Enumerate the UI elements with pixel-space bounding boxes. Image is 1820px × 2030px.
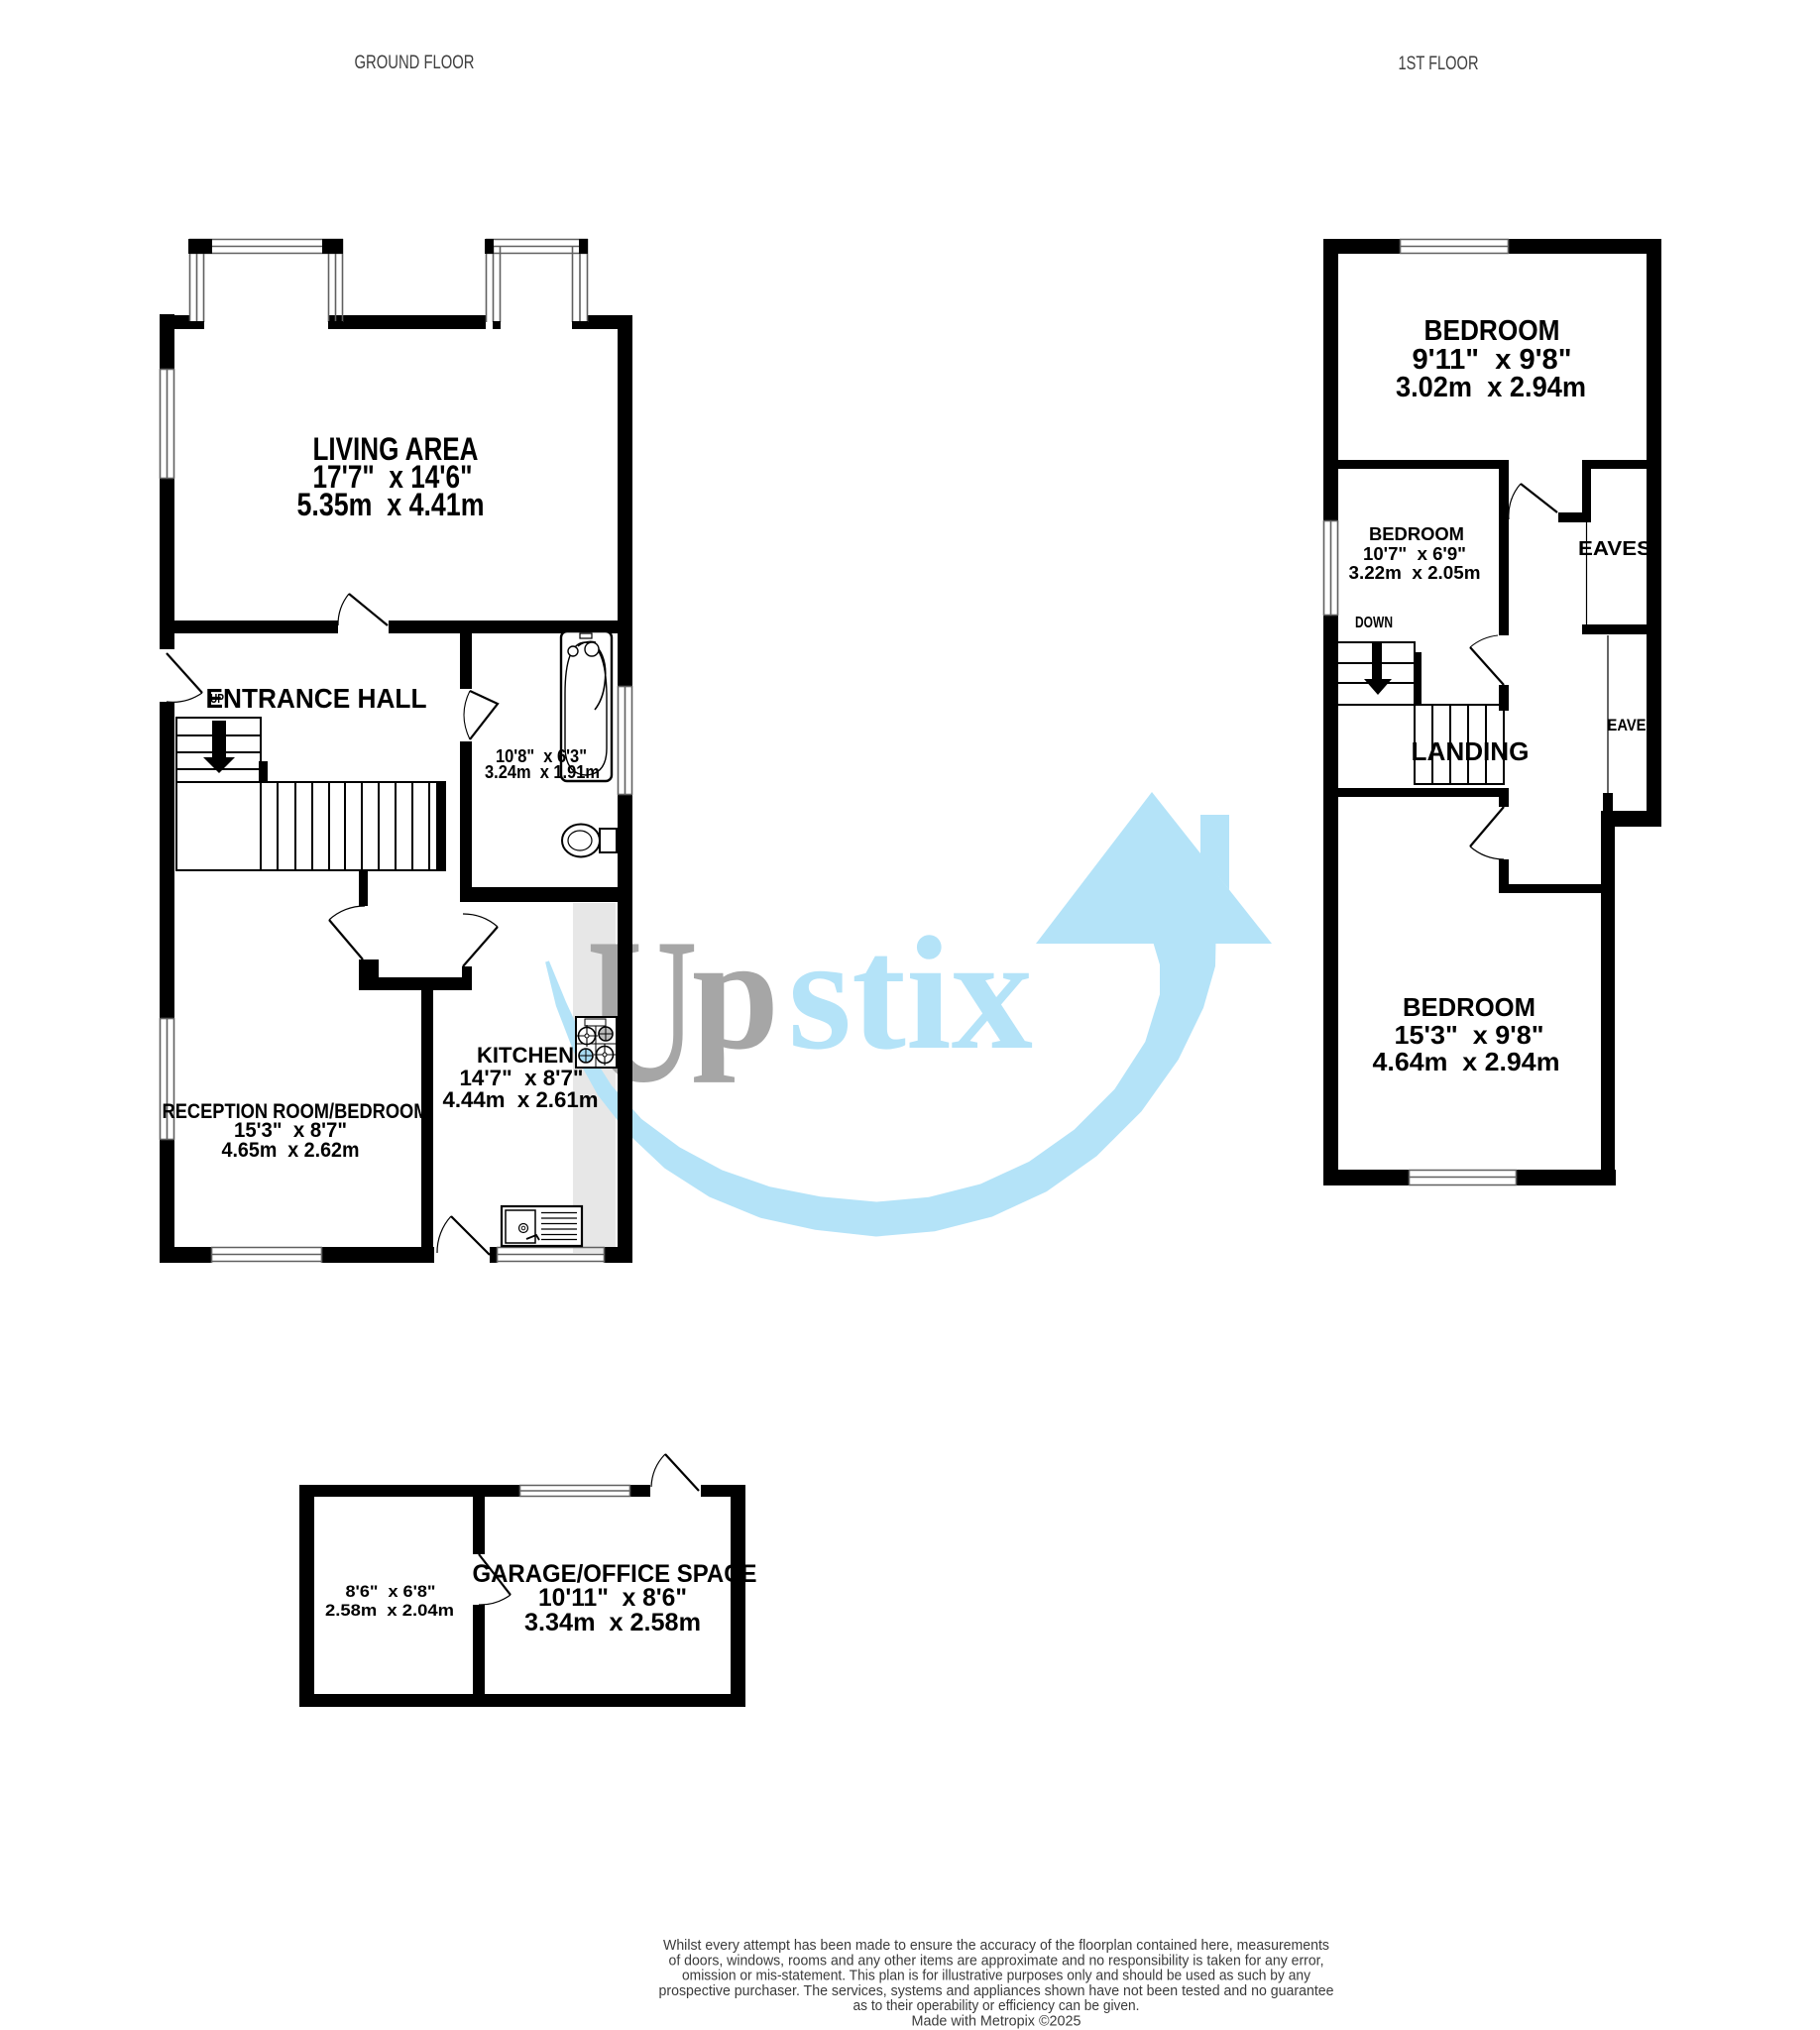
svg-text:3.02m x 2.94m: 3.02m x 2.94m [1396,372,1586,403]
svg-text:3.24m x 1.91m: 3.24m x 1.91m [485,762,600,782]
svg-text:Made with Metropix ©2025: Made with Metropix ©2025 [912,2014,1081,2030]
svg-text:as to their operability or eff: as to their operability or efficiency ca… [853,1998,1140,2014]
svg-text:LANDING: LANDING [1412,736,1530,766]
svg-text:stix: stix [788,904,1033,1083]
svg-text:p: p [692,904,779,1083]
svg-text:1ST FLOOR: 1ST FLOOR [1399,54,1479,74]
svg-text:4.44m x 2.61m: 4.44m x 2.61m [443,1087,599,1112]
svg-text:8'6" x 6'8": 8'6" x 6'8" [346,1582,436,1601]
svg-text:EAVE: EAVE [1608,716,1647,734]
svg-text:4.65m x 2.62m: 4.65m x 2.62m [222,1139,360,1162]
svg-text:3.22m x 2.05m: 3.22m x 2.05m [1349,563,1481,583]
svg-text:DOWN: DOWN [1355,615,1393,631]
svg-text:Whilst every attempt has been: Whilst every attempt has been made to en… [663,1938,1329,1954]
svg-text:15'3" x 9'8": 15'3" x 9'8" [1395,1020,1544,1050]
svg-text:10'7" x 6'9": 10'7" x 6'9" [1363,544,1466,564]
svg-text:ENTRANCE HALL: ENTRANCE HALL [206,683,427,714]
svg-text:4.64m x 2.94m: 4.64m x 2.94m [1373,1047,1560,1076]
svg-text:omission or mis-statement. Thi: omission or mis-statement. This plan is … [682,1969,1311,1984]
svg-text:3.34m x 2.58m: 3.34m x 2.58m [524,1609,701,1636]
svg-text:2.58m x 2.04m: 2.58m x 2.04m [325,1601,454,1620]
svg-text:BEDROOM: BEDROOM [1369,524,1464,544]
svg-text:10'11" x 8'6": 10'11" x 8'6" [538,1584,687,1612]
svg-text:BEDROOM: BEDROOM [1403,992,1536,1022]
svg-text:5.35m x 4.41m: 5.35m x 4.41m [297,487,485,522]
svg-text:GROUND FLOOR: GROUND FLOOR [355,53,475,73]
svg-text:of doors, windows, rooms and a: of doors, windows, rooms and any other i… [669,1953,1324,1969]
svg-text:U: U [587,896,698,1126]
svg-text:prospective purchaser. The ser: prospective purchaser. The services, sys… [659,1983,1334,1999]
svg-text:KITCHEN: KITCHEN [477,1043,574,1068]
svg-text:BEDROOM: BEDROOM [1424,315,1560,347]
svg-text:EAVES: EAVES [1578,538,1651,560]
